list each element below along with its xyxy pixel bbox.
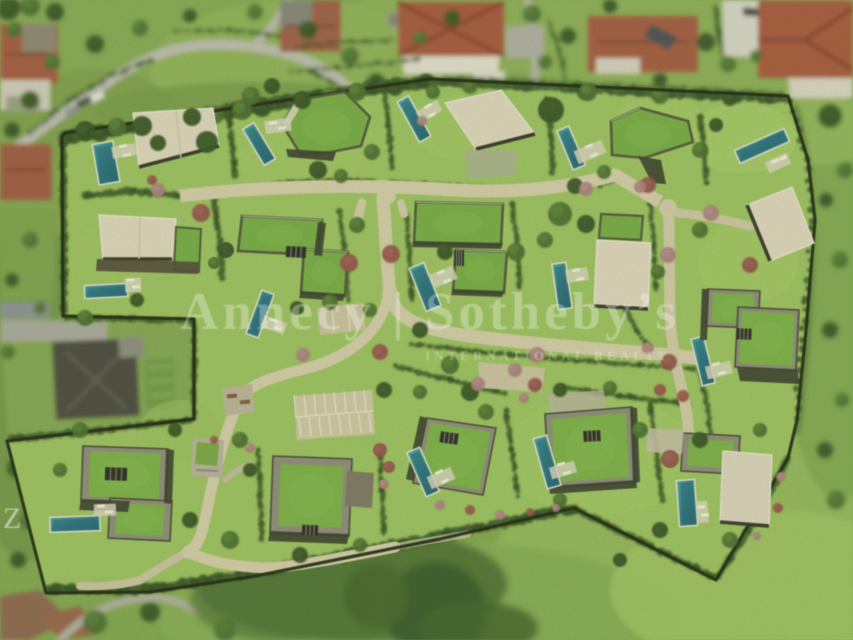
svg-text:Z: Z (3, 502, 21, 535)
svg-text:Annecy | Sotheby’s: Annecy | Sotheby’s (180, 283, 680, 341)
svg-text:INTERNATIONAL REALTY: INTERNATIONAL REALTY (425, 348, 671, 363)
